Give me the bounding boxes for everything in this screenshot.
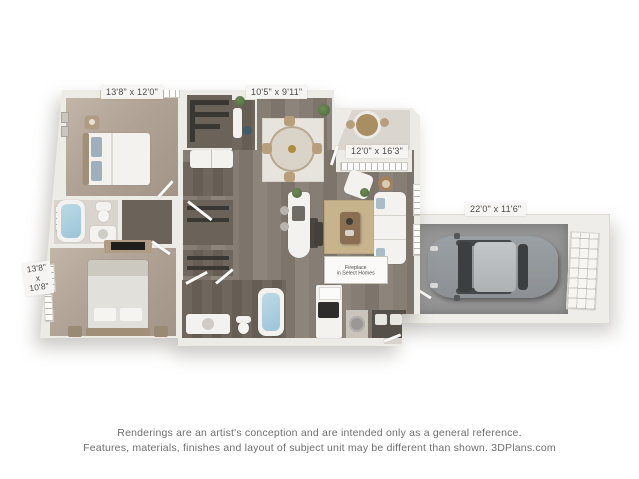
closet-door-split: [211, 150, 212, 168]
plant: [360, 188, 369, 197]
duvet-fold: [111, 133, 113, 185]
pillow: [91, 137, 102, 157]
dining-dimensions-label: 10'5" x 9'11": [246, 86, 307, 99]
refrigerator: [319, 287, 341, 300]
toilet-bowl: [98, 210, 109, 222]
car-rear-window: [518, 244, 528, 290]
throw-pillow: [376, 198, 385, 209]
tv: [111, 242, 145, 250]
kitchen-island: [288, 192, 310, 258]
linen-shelf: [187, 266, 229, 270]
sofa: [374, 192, 406, 264]
bar-stool: [280, 222, 289, 231]
patio-table: [356, 114, 378, 136]
coffee-table: [340, 212, 360, 244]
car-roof: [474, 242, 516, 292]
wall-art: [61, 126, 69, 137]
centerpiece: [288, 145, 296, 153]
linen-shelf: [187, 256, 229, 260]
closet-shelf: [190, 112, 229, 117]
sink: [98, 229, 108, 239]
car-top-view: [428, 236, 558, 298]
bathtub: [57, 200, 85, 242]
plant: [235, 96, 245, 106]
patio-chair: [380, 118, 389, 127]
garage-door-panel: [566, 231, 600, 310]
headboard: [83, 133, 89, 185]
kitchen-cabinets: [316, 285, 342, 338]
car-headlight-right: [430, 283, 438, 288]
lamp: [89, 119, 95, 125]
lamp: [382, 180, 390, 188]
dining-chair: [284, 172, 295, 182]
bed: [88, 260, 148, 330]
blanket: [88, 260, 148, 276]
pillow: [120, 308, 142, 321]
side-table: [378, 176, 393, 191]
utility-closet: [346, 310, 368, 338]
bathtub-water: [262, 293, 280, 331]
water-heater: [349, 316, 365, 332]
fireplace-note-line2: in Select Homes: [337, 270, 375, 276]
nightstand: [68, 326, 82, 337]
bedroom2-dim-line3: 10'8": [29, 282, 50, 294]
cabinet-tall: [314, 222, 323, 246]
stove: [318, 302, 339, 318]
patio-chair: [346, 120, 355, 129]
tv-stand: [104, 240, 152, 253]
floorplan-canvas: Fireplace in Select Homes 13'8" x 12'0" …: [0, 0, 639, 479]
laundry-closet: [372, 310, 406, 338]
decor: [346, 218, 353, 225]
wall-art: [61, 112, 69, 123]
bedroom1-dimensions-label: 13'8" x 12'0": [101, 86, 163, 99]
bedroom2-window: [43, 294, 53, 322]
disclaimer-line1: Renderings are an artist's conception an…: [0, 426, 639, 441]
desk: [233, 108, 242, 138]
dining-chair: [312, 143, 322, 154]
pillow: [94, 308, 116, 321]
nightstand: [154, 326, 168, 337]
closet-doors: [190, 150, 233, 168]
desk-chair: [243, 126, 252, 135]
living-dimensions-label: 12'0" x 16'3": [346, 145, 408, 158]
sink: [202, 318, 214, 330]
plant: [292, 188, 302, 198]
dining-chair: [284, 116, 295, 126]
fireplace-note: Fireplace in Select Homes: [324, 256, 388, 284]
bed: [83, 133, 150, 185]
bedroom1-closet-floor: [122, 200, 172, 244]
living-side-window: [413, 224, 421, 256]
washer: [375, 314, 387, 325]
car-windshield: [458, 242, 472, 292]
car-headlight-left: [430, 246, 438, 251]
decor: [345, 230, 354, 236]
plant: [318, 104, 330, 116]
dining-table: [271, 128, 313, 170]
dryer: [390, 314, 402, 325]
bedroom2-dimensions-label: 13'8" x 10'8": [22, 260, 54, 296]
living-side-window: [413, 184, 421, 216]
garage-room: [396, 214, 610, 324]
sink: [292, 206, 305, 221]
bathtub-water: [61, 204, 81, 238]
closet-shelf: [190, 100, 229, 105]
car-mirror-right: [454, 295, 460, 301]
toilet-bowl: [238, 322, 249, 334]
bathtub: [258, 288, 284, 336]
disclaimer-line2: Features, materials, finishes and layout…: [0, 441, 639, 456]
disclaimer-text: Renderings are an artist's conception an…: [0, 426, 639, 456]
pillow: [91, 161, 102, 181]
sofa-cushion-line: [374, 215, 406, 216]
apartment-unit: Fireplace in Select Homes: [40, 88, 422, 348]
headboard: [86, 328, 150, 336]
bar-stool: [280, 206, 289, 215]
garage-dimensions-label: 22'0" x 11'6": [465, 203, 526, 216]
dining-chair: [262, 143, 272, 154]
car-mirror-left: [454, 233, 460, 239]
sofa-cushion-line: [374, 239, 406, 240]
closet-shelf: [190, 100, 195, 142]
bathroom2-vanity: [186, 314, 230, 334]
